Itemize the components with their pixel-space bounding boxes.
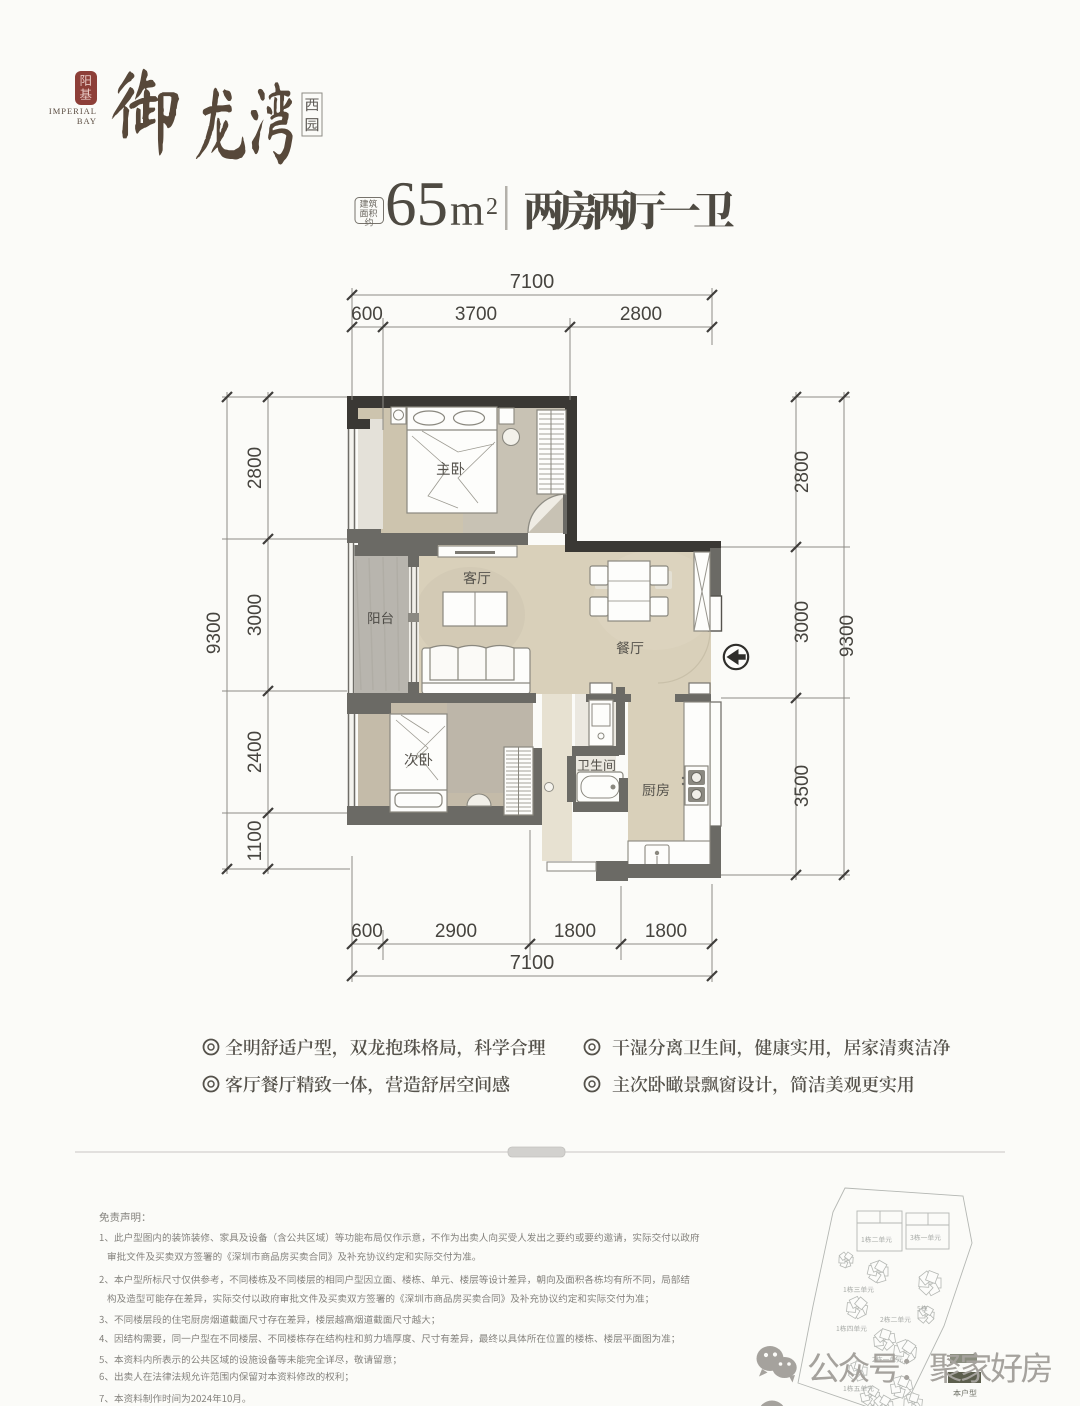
svg-text:2800: 2800 — [245, 447, 266, 489]
svg-text:3500: 3500 — [792, 765, 813, 807]
svg-text:65: 65 — [385, 169, 448, 239]
svg-text:9300: 9300 — [204, 612, 225, 654]
svg-text:BAY: BAY — [77, 116, 97, 126]
svg-text:600: 600 — [351, 921, 383, 942]
svg-text:7100: 7100 — [510, 952, 555, 974]
svg-text:2900: 2900 — [435, 921, 477, 942]
svg-text:m: m — [450, 186, 484, 235]
svg-text:600: 600 — [351, 304, 383, 325]
svg-text:2: 2 — [486, 194, 498, 220]
svg-text:3000: 3000 — [792, 601, 813, 643]
svg-text:1800: 1800 — [554, 921, 596, 942]
svg-text:2800: 2800 — [620, 304, 662, 325]
svg-text:2400: 2400 — [245, 731, 266, 773]
svg-text:7100: 7100 — [510, 271, 555, 293]
svg-text:3000: 3000 — [245, 594, 266, 636]
svg-text:3700: 3700 — [455, 304, 497, 325]
svg-text:1800: 1800 — [645, 921, 687, 942]
svg-text:IMPERIAL: IMPERIAL — [49, 106, 97, 116]
svg-text:1100: 1100 — [245, 821, 266, 862]
svg-text:2800: 2800 — [792, 451, 813, 493]
svg-text:9300: 9300 — [837, 615, 858, 657]
